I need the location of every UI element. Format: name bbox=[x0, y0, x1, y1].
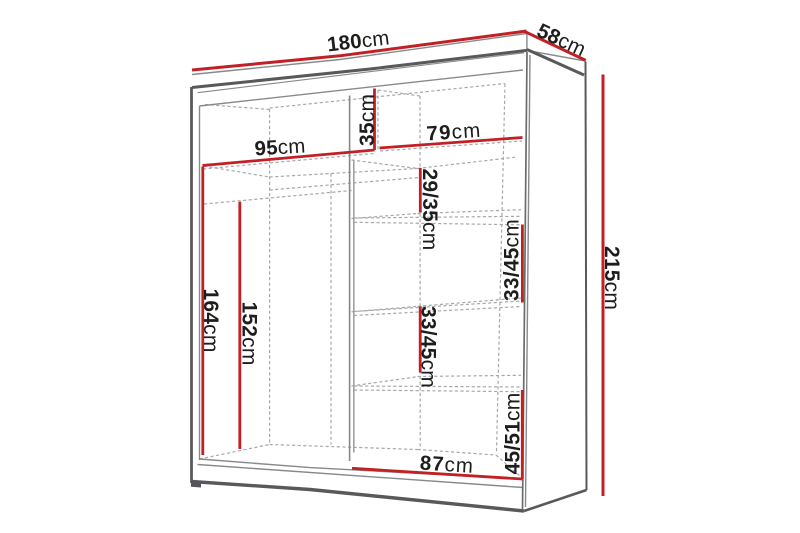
svg-text:95cm: 95cm bbox=[254, 134, 306, 160]
svg-text:33/45cm: 33/45cm bbox=[417, 306, 440, 388]
svg-text:152cm: 152cm bbox=[238, 302, 261, 366]
svg-text:33/45cm: 33/45cm bbox=[501, 219, 524, 301]
svg-text:180cm: 180cm bbox=[326, 26, 391, 56]
svg-text:45/51cm: 45/51cm bbox=[502, 393, 525, 475]
svg-text:79cm: 79cm bbox=[426, 119, 482, 146]
svg-text:29/35cm: 29/35cm bbox=[418, 169, 441, 251]
svg-text:87cm: 87cm bbox=[419, 452, 474, 478]
svg-text:215cm: 215cm bbox=[600, 246, 623, 310]
svg-text:164cm: 164cm bbox=[199, 289, 222, 353]
svg-text:35cm: 35cm bbox=[356, 94, 379, 146]
